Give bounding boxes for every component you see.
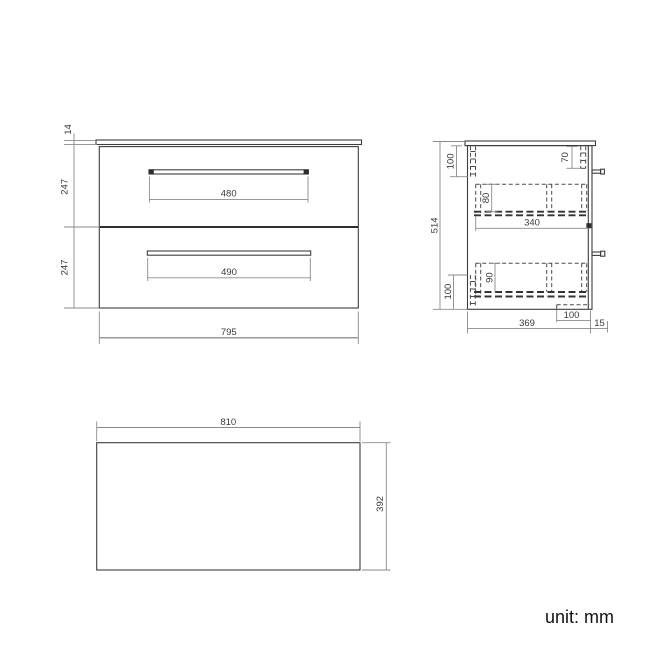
handle-end-cap (304, 169, 309, 174)
wall-bracket-tab (592, 170, 601, 173)
side-countertop (465, 141, 596, 146)
dim-drawer-inner-depth: 340 (524, 218, 540, 229)
dim-top-handle-width: 480 (221, 188, 237, 199)
dim-top-rail-offset: 100 (445, 153, 456, 169)
side-view: 514 100 70 80 340 90 100 369 (430, 141, 608, 334)
dim-bottom-drawer-side-height: 90 (484, 272, 495, 283)
wall-bracket-tab-tip (601, 169, 605, 174)
dim-base-recess-width: 100 (564, 310, 580, 321)
dim-wall-gap: 15 (594, 318, 605, 329)
front-bottom-handle (147, 251, 310, 255)
dim-countertop-width: 810 (220, 417, 236, 428)
dim-bottom-handle-width: 490 (221, 267, 237, 278)
dim-countertop-thickness: 14 (63, 124, 74, 135)
dim-bottom-rail-offset: 100 (443, 284, 454, 300)
vanity-dimension-drawing: 480 490 14 247 247 795 (0, 0, 650, 650)
dim-top-drawer-height: 247 (60, 179, 71, 195)
dim-bottom-drawer-height: 247 (60, 260, 71, 276)
handle-end-cap (149, 169, 154, 174)
unit-label: unit: mm (545, 607, 614, 627)
dim-cabinet-depth: 369 (519, 318, 535, 329)
front-view: 480 490 14 247 247 795 (60, 124, 362, 344)
front-top-handle (149, 170, 308, 174)
top-countertop-outline (97, 443, 360, 570)
wall-bracket-tab (592, 252, 601, 255)
technical-drawing-page: 480 490 14 247 247 795 (0, 0, 650, 650)
dim-back-bracket-height: 70 (560, 152, 571, 163)
dim-top-drawer-side-height: 80 (481, 193, 492, 204)
runner-block (586, 223, 591, 228)
dim-total-height: 514 (430, 217, 441, 233)
front-countertop (96, 140, 362, 145)
dim-cabinet-width: 795 (221, 327, 237, 338)
wall-bracket-tab-tip (601, 251, 605, 256)
top-view: 810 392 (97, 417, 391, 570)
dim-countertop-depth: 392 (375, 496, 386, 512)
